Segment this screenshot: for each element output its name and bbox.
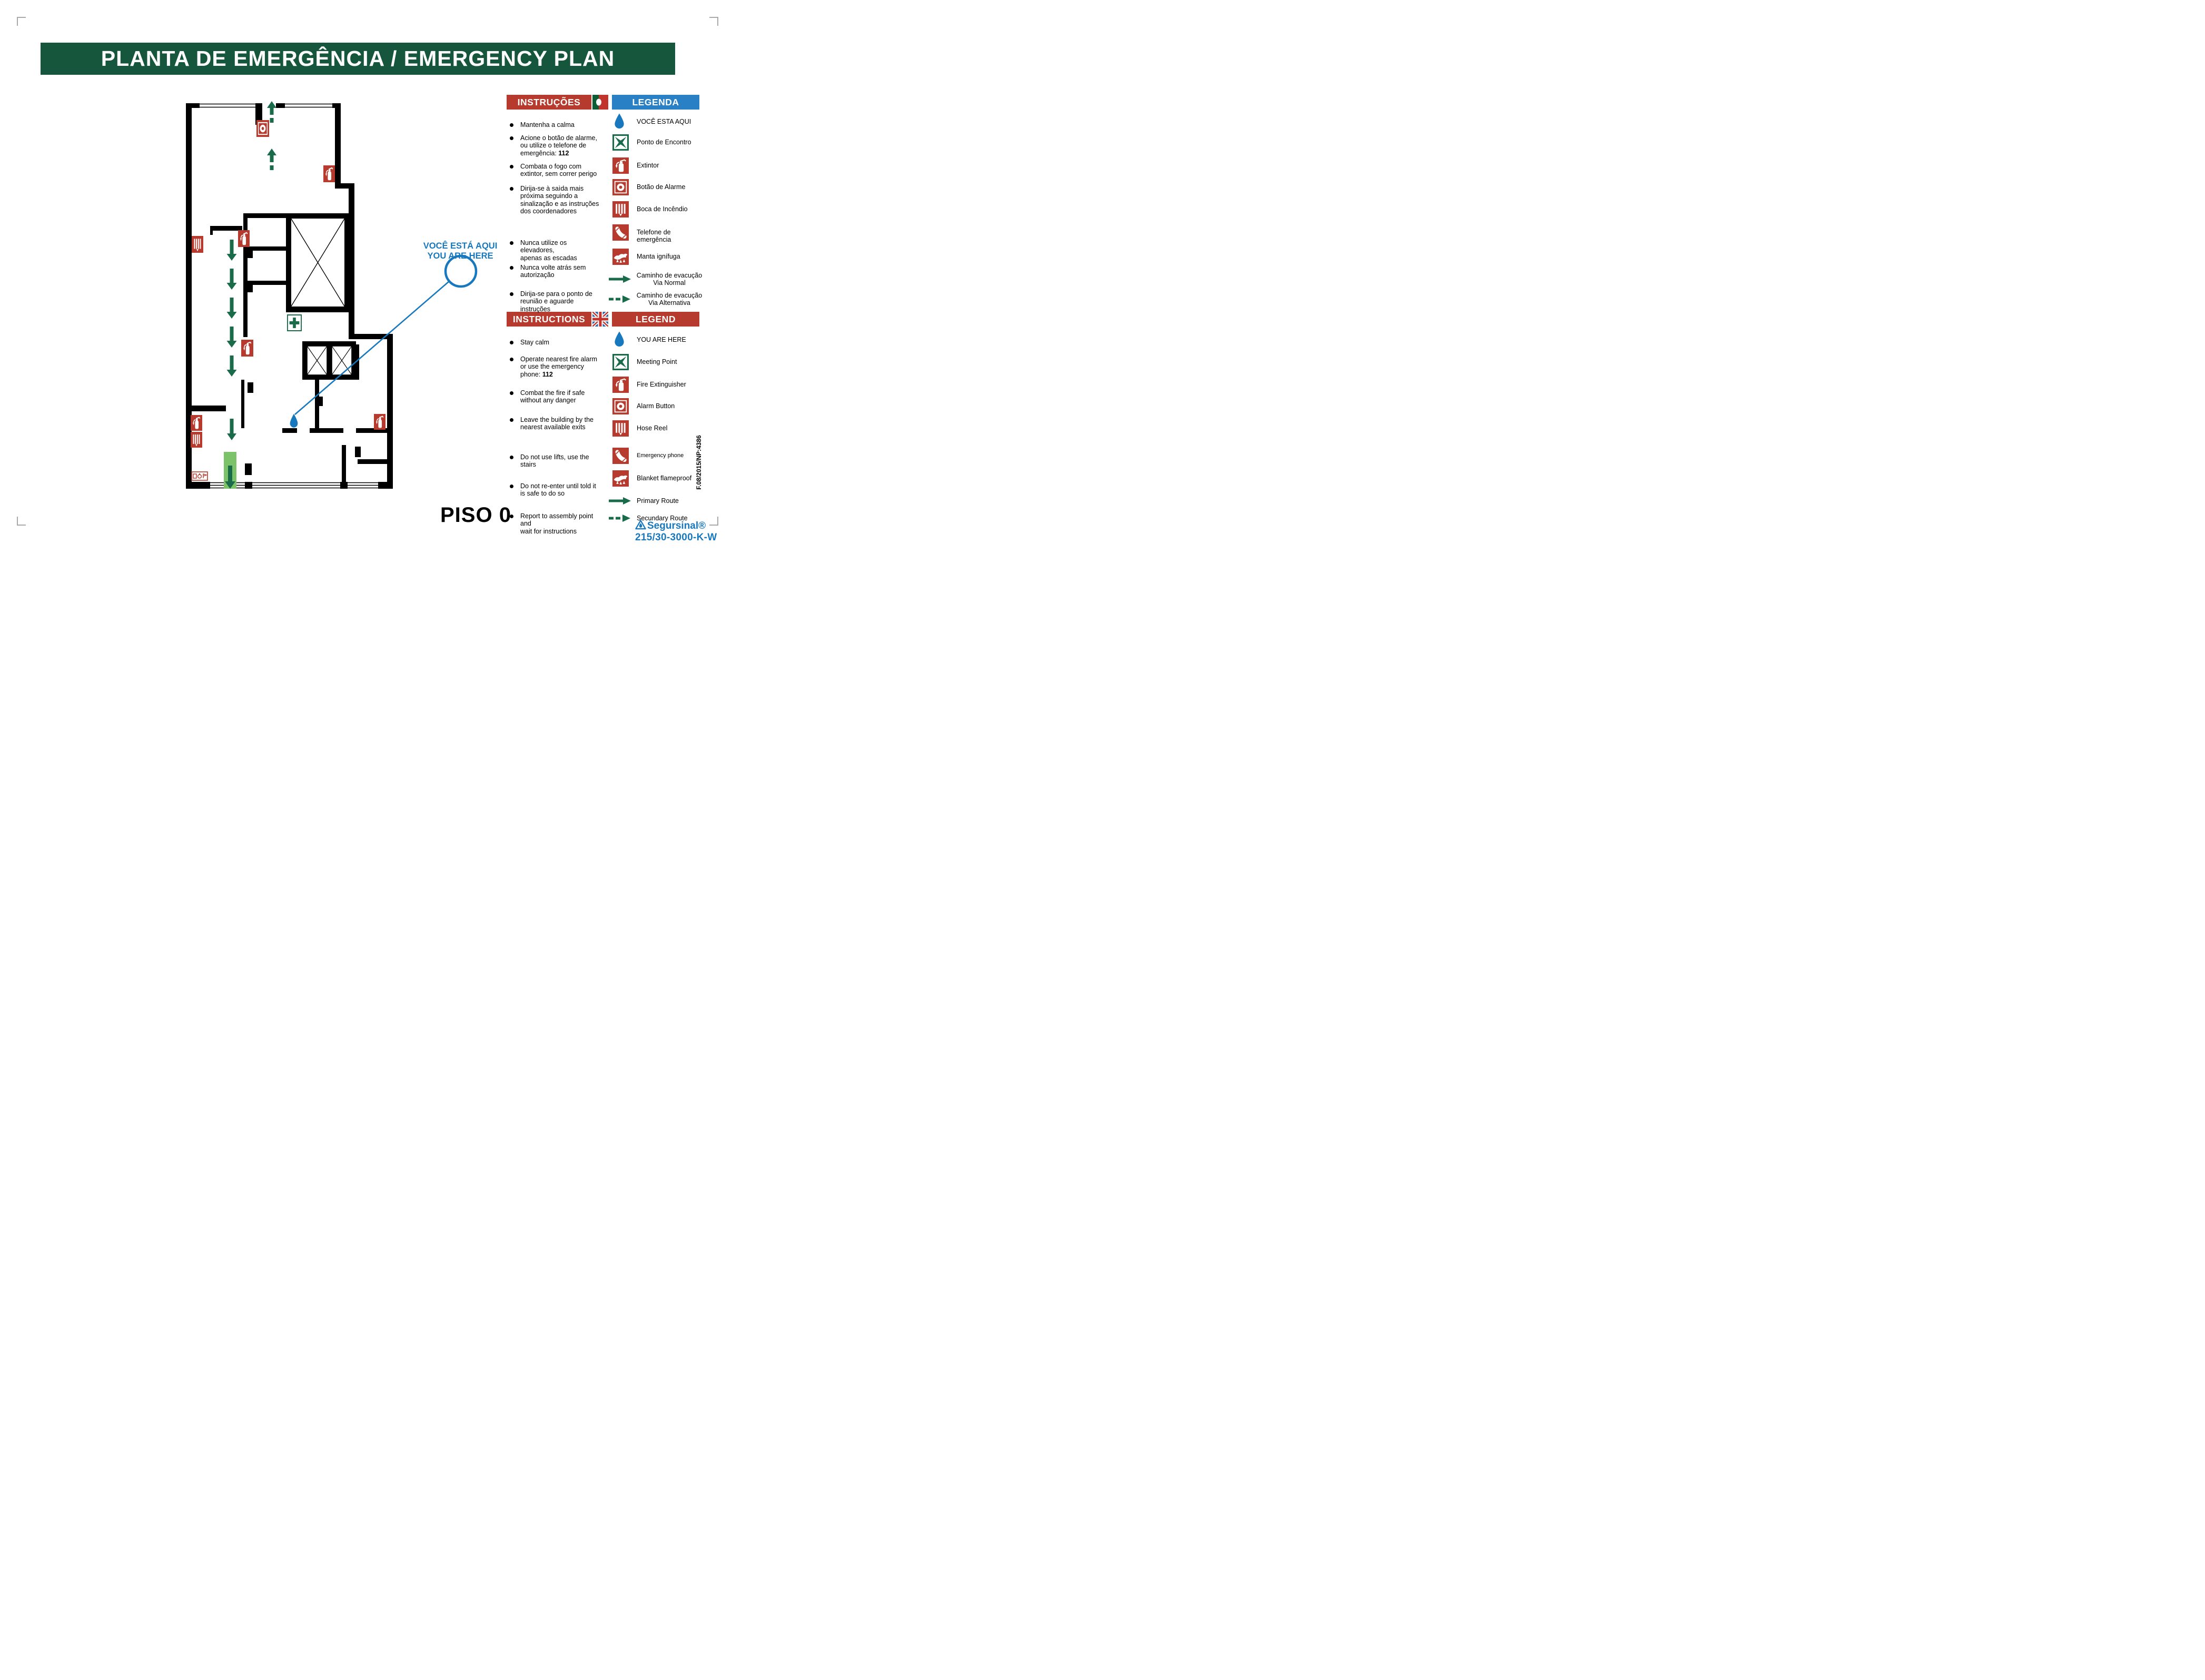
instruction-item: Do not re-enter until told itis safe to …: [507, 482, 601, 498]
fire-extinguisher-icon: [612, 377, 629, 393]
legend-item: [612, 157, 629, 174]
legend-label: Boca de Incêndio: [637, 205, 705, 213]
callout-line-en: YOU ARE HERE: [428, 251, 493, 261]
portugal-flag-icon: [592, 95, 608, 110]
legend-item: [612, 377, 629, 393]
legend-label: Ponto de Encontro: [637, 139, 705, 146]
bullet-dot: [510, 187, 513, 191]
pt-instructions-header: INSTRUÇÕES: [507, 95, 591, 110]
fire-extinguisher-icon: [191, 415, 202, 431]
bullet-dot: [510, 241, 513, 245]
instruction-text: Combat the fire if safewithout any dange…: [520, 389, 601, 404]
fire-extinguisher-icon: [612, 157, 629, 174]
legend-label: Manta ignífuga: [637, 253, 705, 260]
bullet-dot: [510, 341, 513, 344]
you-are-here-droplet-icon: [612, 331, 626, 349]
portugal-flag-icon: [592, 95, 608, 110]
bullet-dot: [510, 292, 513, 296]
bullet-dot: [510, 456, 513, 459]
legend-item: [609, 496, 632, 506]
reference-code: F.08/2015/NP:4386: [695, 435, 703, 489]
exit-zone: [224, 452, 236, 489]
instruction-item: Combat the fire if safewithout any dange…: [507, 389, 601, 404]
window-lines: [200, 104, 332, 107]
secondary-route-arrow-icon: [609, 294, 632, 304]
brand-name: Segursinal®: [647, 521, 706, 531]
instruction-item: Dirija-se à saìda maispróxima seguindo a…: [507, 185, 601, 215]
united-kingdom-flag-icon: [592, 312, 608, 327]
bullet-dot: [510, 391, 513, 395]
instruction-text: Combata o fogo comextintor, sem correr p…: [520, 163, 601, 178]
alarm-button-icon: [612, 398, 629, 414]
legend-item: [612, 249, 629, 265]
legend-item: [612, 420, 629, 437]
emergency-phone-icon: [612, 224, 629, 241]
instruction-item: Nunca volte atrás semautorização: [507, 264, 601, 279]
instruction-item: Operate nearest fire alarmor use the eme…: [507, 355, 601, 378]
segursinal-logo-icon: [635, 519, 646, 532]
emergency-plan-poster: VOCÊ ESTÁ AQUI YOU ARE HERE PLANTA DE EM…: [0, 0, 735, 560]
instruction-text: Stay calm: [520, 339, 601, 346]
instruction-text: Do not re-enter until told itis safe to …: [520, 482, 601, 498]
legend-item: [609, 294, 632, 304]
instruction-text: Dirija-se à saìda maispróxima seguindo a…: [520, 185, 601, 215]
legend-label: Primary Route: [637, 497, 705, 505]
you-are-here-droplet-icon: [457, 264, 464, 277]
legend-item: [612, 179, 629, 195]
instruction-item: Leave the building by thenearest availab…: [507, 416, 601, 431]
legend-item: [609, 513, 632, 523]
legend-item: [612, 224, 629, 241]
legend-label: Hose Reel: [637, 424, 705, 432]
instruction-text: Report to assembly point andwait for ins…: [520, 512, 601, 535]
instruction-item: Combata o fogo comextintor, sem correr p…: [507, 163, 601, 178]
fire-extinguisher-icon: [374, 414, 385, 430]
legend-item: [612, 113, 626, 131]
fire-equipment-sign-icon: [192, 472, 207, 480]
legend-label: Alarm Button: [637, 402, 705, 410]
instruction-item: Mantenha a calma: [507, 121, 601, 129]
instruction-text: Dirija-se para o ponto dereunião e aguar…: [520, 290, 601, 313]
secondary-route-arrow-icon: [609, 513, 632, 523]
instruction-item: Report to assembly point andwait for ins…: [507, 512, 601, 535]
title-banner: PLANTA DE EMERGÊNCIA / EMERGENCY PLAN: [41, 43, 675, 75]
pt-legend-header: LEGENDA: [612, 95, 699, 110]
bullet-dot: [510, 418, 513, 422]
instruction-text: Nunca utilize os elevadores,apenas as es…: [520, 239, 601, 262]
instruction-text: Acione o botão de alarme,ou utilize o te…: [520, 134, 601, 157]
legend-label: Extintor: [637, 162, 705, 169]
legend-item: [612, 354, 629, 370]
evacuation-arrows: [225, 101, 276, 489]
legend-label: Telefone de emergência: [637, 229, 705, 243]
en-instructions-header: INSTRUCTIONS: [507, 312, 591, 327]
hose-reel-icon: [191, 432, 202, 448]
meeting-point-icon: [612, 134, 629, 151]
instruction-item: Dirija-se para o ponto dereunião e aguar…: [507, 290, 601, 313]
legend-label: Meeting Point: [637, 358, 705, 365]
page-title: PLANTA DE EMERGÊNCIA / EMERGENCY PLAN: [101, 46, 615, 71]
legend-label: YOU ARE HERE: [637, 336, 705, 343]
first-aid-cross-icon: [288, 315, 301, 331]
legend-label: Caminho de evacuçãoVia Alternativa: [634, 292, 705, 307]
legend-label: VOCÊ ESTA AQUI: [637, 118, 705, 125]
legend-item: [612, 331, 626, 349]
instruction-text: Mantenha a calma: [520, 121, 601, 129]
legend-item: [609, 274, 632, 284]
fire-blanket-icon: [612, 470, 629, 487]
instruction-item: Acione o botão de alarme,ou utilize o te…: [507, 134, 601, 157]
legend-label: Botão de Alarme: [637, 183, 705, 191]
legend-item: [612, 448, 629, 464]
bullet-dot: [510, 358, 513, 361]
hose-reel-icon: [612, 420, 629, 437]
fire-extinguisher-icon: [323, 165, 335, 182]
you-are-here-droplet-icon: [612, 113, 626, 131]
instruction-text: Operate nearest fire alarmor use the eme…: [520, 355, 601, 378]
legend-item: [612, 470, 629, 487]
you-are-here-droplet-icon: [290, 414, 298, 428]
legend-item: [612, 398, 629, 414]
united-kingdom-flag-icon: [592, 312, 608, 327]
bullet-dot: [510, 485, 513, 488]
fire-extinguisher-icon: [238, 230, 250, 247]
floor-label: PISO 0: [440, 503, 511, 527]
alarm-button-icon: [256, 120, 269, 137]
segursinal-logo-icon: [635, 519, 646, 530]
instruction-item: Nunca utilize os elevadores,apenas as es…: [507, 239, 601, 262]
legend-item: [612, 134, 629, 151]
fire-extinguisher-icon: [241, 340, 253, 357]
legend-label: Caminho de evacuçãoVia Normal: [634, 272, 705, 286]
callout-line-pt: VOCÊ ESTÁ AQUI: [423, 241, 498, 251]
bullet-dot: [510, 266, 513, 270]
brand-block: Segursinal® 215/30-3000-K-W: [635, 519, 704, 543]
you-are-here-callout: VOCÊ ESTÁ AQUI YOU ARE HERE: [295, 241, 497, 414]
legend-item: [612, 201, 629, 218]
instruction-item: Do not use lifts, use thestairs: [507, 453, 601, 469]
instruction-text: Nunca volte atrás semautorização: [520, 264, 601, 279]
meeting-point-icon: [612, 354, 629, 370]
primary-route-arrow-icon: [609, 274, 632, 284]
legend-label: Fire Extinguisher: [637, 381, 705, 388]
alarm-button-icon: [612, 179, 629, 195]
stair-lines: [210, 483, 378, 488]
lift-shaft: [291, 218, 352, 375]
brand-model: 215/30-3000-K-W: [635, 532, 704, 543]
instruction-text: Do not use lifts, use thestairs: [520, 453, 601, 469]
bullet-dot: [510, 123, 513, 127]
instruction-item: Stay calm: [507, 339, 601, 346]
instruction-text: Leave the building by thenearest availab…: [520, 416, 601, 431]
hose-reel-icon: [192, 236, 203, 253]
hose-reel-icon: [612, 201, 629, 218]
fire-blanket-icon: [612, 249, 629, 265]
en-legend-header: LEGEND: [612, 312, 699, 327]
bullet-dot: [510, 165, 513, 169]
bullet-dot: [510, 136, 513, 140]
floor-plan-walls: [186, 103, 393, 489]
emergency-phone-icon: [612, 448, 629, 464]
primary-route-arrow-icon: [609, 496, 632, 506]
